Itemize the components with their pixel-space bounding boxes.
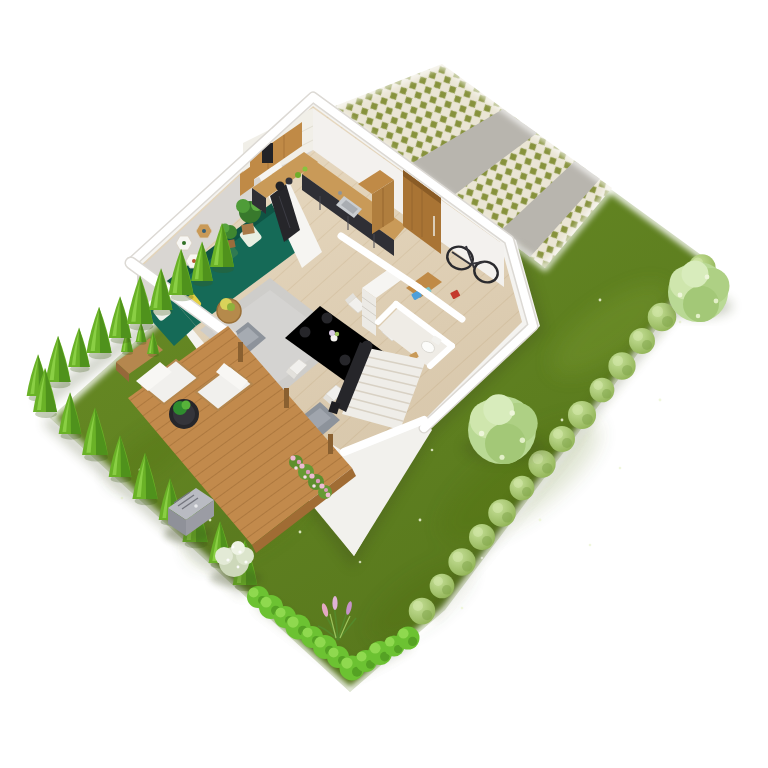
boxwood-bush [469, 524, 495, 550]
fruit-bowl [303, 167, 308, 172]
hedge-blob [397, 627, 420, 650]
boxwood-bush [549, 426, 575, 452]
deck-table-plant [182, 401, 191, 410]
boxwood-bush [409, 598, 436, 625]
fruit-bowl [295, 172, 301, 178]
boxwood-bush [488, 499, 516, 527]
mower-button [194, 504, 198, 508]
stove-pot [286, 178, 293, 185]
deck-post [284, 388, 289, 408]
stove-pot [276, 182, 285, 191]
plate [340, 355, 351, 366]
boxwood-bush [590, 378, 615, 403]
coffee-table [217, 298, 241, 323]
plate [322, 313, 333, 324]
faucet [338, 191, 342, 195]
boxwood-bush [629, 328, 655, 354]
plate [300, 327, 311, 338]
boxwood-bush [608, 352, 635, 379]
table-plant [227, 303, 235, 311]
vase-flowers [329, 330, 335, 336]
floor-plan-render [0, 0, 768, 768]
deck-post [238, 342, 243, 362]
boxwood-bush [510, 476, 535, 501]
boxwood-bush [448, 548, 475, 575]
pink-bloom [332, 596, 337, 610]
boxwood-bush [568, 401, 596, 429]
vase-flowers [335, 332, 339, 336]
deck-table [169, 399, 199, 429]
boxwood-bush [430, 574, 455, 599]
deck-post [328, 434, 333, 454]
